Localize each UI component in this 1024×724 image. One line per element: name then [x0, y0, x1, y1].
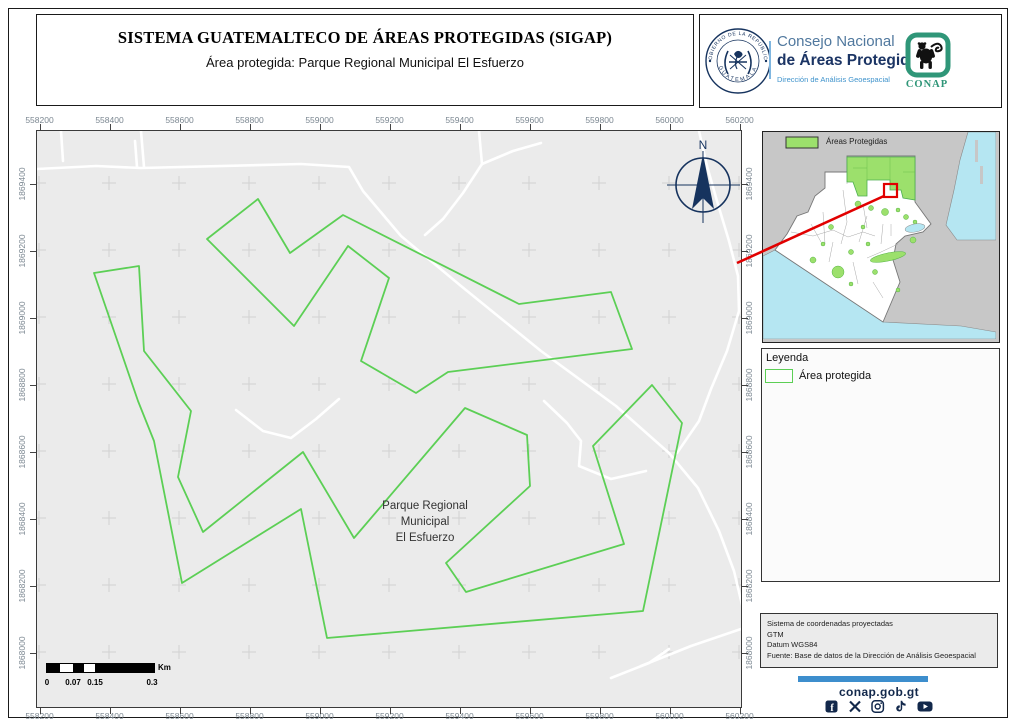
info-line-3: Datum WGS84 — [767, 640, 991, 651]
map-sheet: SISTEMA GUATEMALTECO DE ÁREAS PROTEGIDAS… — [0, 0, 1024, 724]
main-map: N Parque Regional Municipal El Esfuerzo — [36, 130, 742, 708]
org-name-line1: Consejo Nacional — [777, 33, 895, 50]
logo-divider — [769, 41, 771, 79]
legend-box — [761, 348, 1000, 582]
north-label: N — [699, 138, 708, 152]
legend-title: Leyenda — [766, 352, 808, 364]
north-arrow-icon: N — [667, 138, 740, 223]
overview-canvas — [763, 132, 996, 339]
quetzal-emblem-icon — [725, 51, 751, 74]
legend-swatch — [765, 369, 793, 383]
overview-legend-label: Áreas Protegidas — [826, 137, 887, 146]
overview-legend-swatch — [786, 137, 818, 148]
coordinate-system-info: Sistema de coordenadas proyectadas GTM D… — [760, 613, 998, 668]
instagram-icon — [871, 700, 885, 713]
grid-crosses — [37, 176, 741, 659]
title-box: SISTEMA GUATEMALTECO DE ÁREAS PROTEGIDAS… — [36, 14, 694, 106]
government-seal-icon: GOBIERNO DE LA REPÚBLICA GUATEMALA — [703, 26, 773, 96]
scale-bar — [46, 663, 155, 673]
info-line-1: Sistema de coordenadas proyectadas — [767, 619, 991, 630]
website-url: conap.gob.gt — [758, 685, 1000, 699]
svg-text:GUATEMALA: GUATEMALA — [717, 65, 759, 83]
page-subtitle: Área protegida: Parque Regional Municipa… — [206, 55, 524, 70]
legend-item-label: Área protegida — [799, 370, 871, 382]
x-twitter-icon — [848, 700, 862, 713]
seal-text-bottom: GUATEMALA — [717, 65, 759, 83]
info-line-2: GTM — [767, 630, 991, 641]
footer-accent-bar — [798, 676, 928, 682]
org-name-line3: Dirección de Análisis Geoespacial — [777, 75, 890, 84]
roads-layer — [37, 131, 741, 678]
tiktok-icon — [894, 700, 908, 713]
map-canvas: N — [37, 131, 741, 707]
social-icons-row: f — [758, 700, 1000, 713]
scalebar-unit: Km — [158, 663, 171, 672]
conap-monkey-logo-icon — [905, 32, 951, 78]
conap-wordmark: CONAP — [902, 79, 952, 90]
page-title: SISTEMA GUATEMALTECO DE ÁREAS PROTEGIDAS… — [118, 28, 612, 48]
overview-map — [762, 131, 1000, 343]
scalebar-label-03: 0.3 — [146, 678, 157, 687]
facebook-icon: f — [825, 700, 839, 713]
info-line-4: Fuente: Base de datos de la Dirección de… — [767, 651, 991, 662]
scalebar-label-015: 0.15 — [87, 678, 103, 687]
scalebar-label-0: 0 — [45, 678, 49, 687]
youtube-icon — [917, 700, 933, 713]
park-name-label: Parque Regional Municipal El Esfuerzo — [355, 498, 495, 546]
logo-box: GOBIERNO DE LA REPÚBLICA GUATEMALA Conse… — [699, 14, 1002, 108]
protected-area-boundary — [94, 199, 682, 638]
scalebar-label-007: 0.07 — [65, 678, 81, 687]
